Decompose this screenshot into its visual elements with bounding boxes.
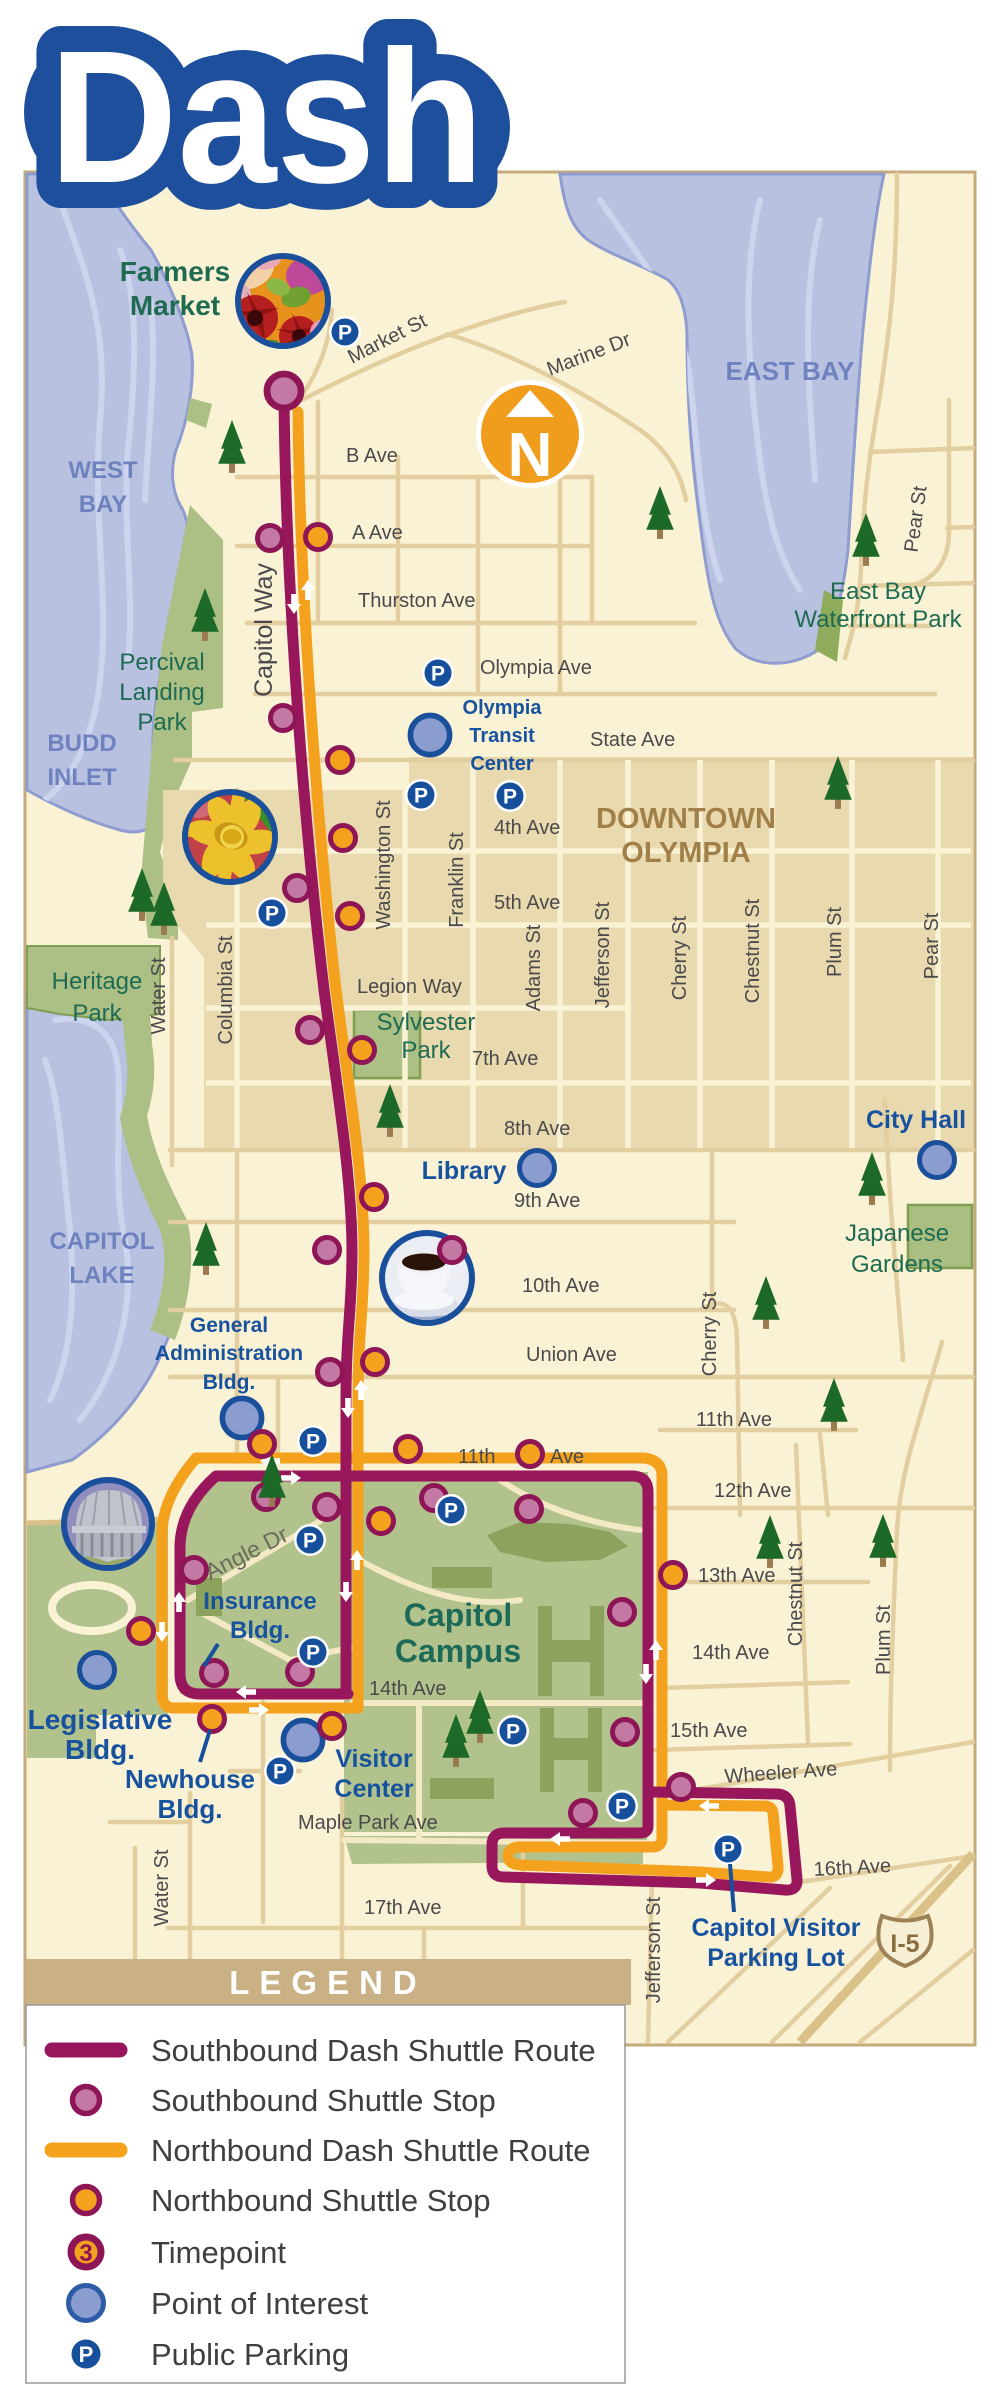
- svg-text:Bldg.: Bldg.: [203, 1371, 256, 1394]
- svg-text:Insurance: Insurance: [203, 1588, 316, 1615]
- svg-text:Legislative: Legislative: [28, 1704, 173, 1735]
- svg-text:Japanese: Japanese: [845, 1220, 949, 1247]
- svg-text:11th Ave: 11th Ave: [696, 1409, 772, 1431]
- svg-text:Cherry St: Cherry St: [669, 915, 691, 1000]
- svg-text:Landing: Landing: [119, 679, 204, 706]
- svg-text:Thurston Ave: Thurston Ave: [358, 590, 475, 612]
- svg-text:I-5: I-5: [890, 1930, 919, 1958]
- svg-text:Newhouse: Newhouse: [125, 1764, 255, 1794]
- svg-text:Plum St: Plum St: [873, 1605, 895, 1675]
- svg-text:Parking Lot: Parking Lot: [707, 1944, 845, 1972]
- svg-text:14th Ave: 14th Ave: [692, 1642, 769, 1664]
- svg-text:Plum St: Plum St: [824, 907, 846, 977]
- svg-text:East Bay: East Bay: [830, 578, 926, 605]
- svg-text:Timepoint: Timepoint: [151, 2235, 286, 2270]
- svg-text:Sylvester: Sylvester: [377, 1009, 476, 1036]
- svg-text:Bldg.: Bldg.: [230, 1617, 290, 1644]
- svg-text:WEST: WEST: [68, 457, 138, 484]
- svg-text:11th: 11th: [458, 1446, 495, 1468]
- svg-text:General: General: [190, 1314, 268, 1337]
- svg-text:Jefferson St: Jefferson St: [643, 1896, 665, 2003]
- svg-text:Olympia Ave: Olympia Ave: [480, 657, 592, 679]
- svg-text:Chestnut St: Chestnut St: [785, 1541, 807, 1646]
- svg-text:B Ave: B Ave: [346, 445, 398, 467]
- svg-text:Capitol Way: Capitol Way: [250, 563, 278, 697]
- svg-text:INLET: INLET: [47, 764, 117, 791]
- svg-text:City Hall: City Hall: [866, 1106, 966, 1134]
- svg-text:13th Ave: 13th Ave: [698, 1565, 775, 1587]
- svg-text:Administration: Administration: [155, 1342, 303, 1365]
- svg-text:Pear St: Pear St: [921, 912, 943, 979]
- svg-text:LEGEND: LEGEND: [229, 1964, 427, 2001]
- svg-text:10th Ave: 10th Ave: [522, 1275, 599, 1297]
- svg-text:Water St: Water St: [148, 957, 170, 1034]
- svg-text:A Ave: A Ave: [352, 522, 403, 544]
- svg-text:Point of Interest: Point of Interest: [151, 2286, 369, 2321]
- svg-text:Park: Park: [72, 1000, 122, 1027]
- svg-text:P: P: [79, 2342, 94, 2367]
- svg-text:16th Ave: 16th Ave: [813, 1855, 892, 1881]
- svg-text:Southbound Shuttle Stop: Southbound Shuttle Stop: [151, 2083, 496, 2118]
- svg-text:Transit: Transit: [469, 725, 535, 747]
- svg-text:Olympia: Olympia: [463, 697, 543, 719]
- svg-text:Park: Park: [137, 709, 187, 736]
- svg-text:Capitol Visitor: Capitol Visitor: [691, 1914, 860, 1942]
- svg-text:Jefferson St: Jefferson St: [592, 901, 614, 1008]
- svg-text:7th Ave: 7th Ave: [472, 1048, 538, 1070]
- svg-text:Ave: Ave: [550, 1446, 584, 1468]
- svg-text:DOWNTOWN: DOWNTOWN: [596, 803, 776, 835]
- svg-text:17th Ave: 17th Ave: [364, 1897, 441, 1919]
- svg-text:Columbia St: Columbia St: [215, 935, 237, 1044]
- svg-text:Waterfront Park: Waterfront Park: [794, 606, 962, 633]
- svg-text:OLYMPIA: OLYMPIA: [621, 837, 751, 869]
- svg-text:Public Parking: Public Parking: [151, 2337, 349, 2372]
- svg-text:Heritage: Heritage: [52, 968, 143, 995]
- svg-text:Franklin St: Franklin St: [446, 832, 468, 928]
- svg-text:CAPITOL: CAPITOL: [50, 1228, 155, 1255]
- svg-text:BUDD: BUDD: [47, 730, 116, 757]
- svg-text:Chestnut St: Chestnut St: [742, 898, 764, 1003]
- svg-text:15th Ave: 15th Ave: [670, 1720, 747, 1742]
- svg-text:LAKE: LAKE: [69, 1262, 134, 1289]
- svg-text:Cherry St: Cherry St: [699, 1291, 721, 1376]
- svg-text:Visitor: Visitor: [335, 1745, 413, 1773]
- svg-text:Legion Way: Legion Way: [357, 976, 462, 998]
- svg-text:Adams St: Adams St: [523, 924, 545, 1011]
- svg-text:Water St: Water St: [151, 1849, 173, 1926]
- svg-text:Bldg.: Bldg.: [158, 1794, 223, 1824]
- svg-text:Library: Library: [422, 1157, 507, 1185]
- svg-text:8th Ave: 8th Ave: [504, 1118, 570, 1140]
- svg-text:Northbound Shuttle Stop: Northbound Shuttle Stop: [151, 2183, 491, 2218]
- svg-text:Percival: Percival: [119, 649, 204, 676]
- svg-text:14th Ave: 14th Ave: [369, 1678, 446, 1700]
- svg-text:BAY: BAY: [79, 491, 127, 518]
- svg-text:Northbound Dash Shuttle Route: Northbound Dash Shuttle Route: [151, 2133, 590, 2168]
- svg-text:Center: Center: [470, 753, 534, 775]
- svg-text:Market: Market: [130, 290, 220, 321]
- svg-text:9th Ave: 9th Ave: [514, 1190, 580, 1212]
- svg-text:12th Ave: 12th Ave: [714, 1480, 791, 1502]
- svg-text:State Ave: State Ave: [590, 729, 675, 751]
- svg-text:Center: Center: [334, 1775, 413, 1803]
- svg-text:Park: Park: [401, 1037, 451, 1064]
- svg-text:Bldg.: Bldg.: [65, 1734, 135, 1765]
- svg-text:Gardens: Gardens: [851, 1251, 943, 1278]
- svg-text:N: N: [508, 421, 553, 490]
- svg-text:Union Ave: Union Ave: [526, 1344, 617, 1366]
- svg-text:Campus: Campus: [395, 1633, 521, 1669]
- svg-text:Southbound Dash Shuttle Route: Southbound Dash Shuttle Route: [151, 2033, 596, 2068]
- svg-text:Capitol: Capitol: [404, 1597, 512, 1633]
- svg-text:5th Ave: 5th Ave: [494, 892, 560, 914]
- svg-text:EAST BAY: EAST BAY: [725, 356, 854, 386]
- svg-text:Farmers: Farmers: [120, 256, 231, 287]
- svg-text:Dash: Dash: [49, 12, 484, 223]
- svg-text:4th Ave: 4th Ave: [494, 817, 560, 839]
- svg-text:3: 3: [79, 2240, 92, 2267]
- svg-text:Maple Park Ave: Maple Park Ave: [298, 1812, 438, 1834]
- svg-text:Washington St: Washington St: [373, 800, 395, 930]
